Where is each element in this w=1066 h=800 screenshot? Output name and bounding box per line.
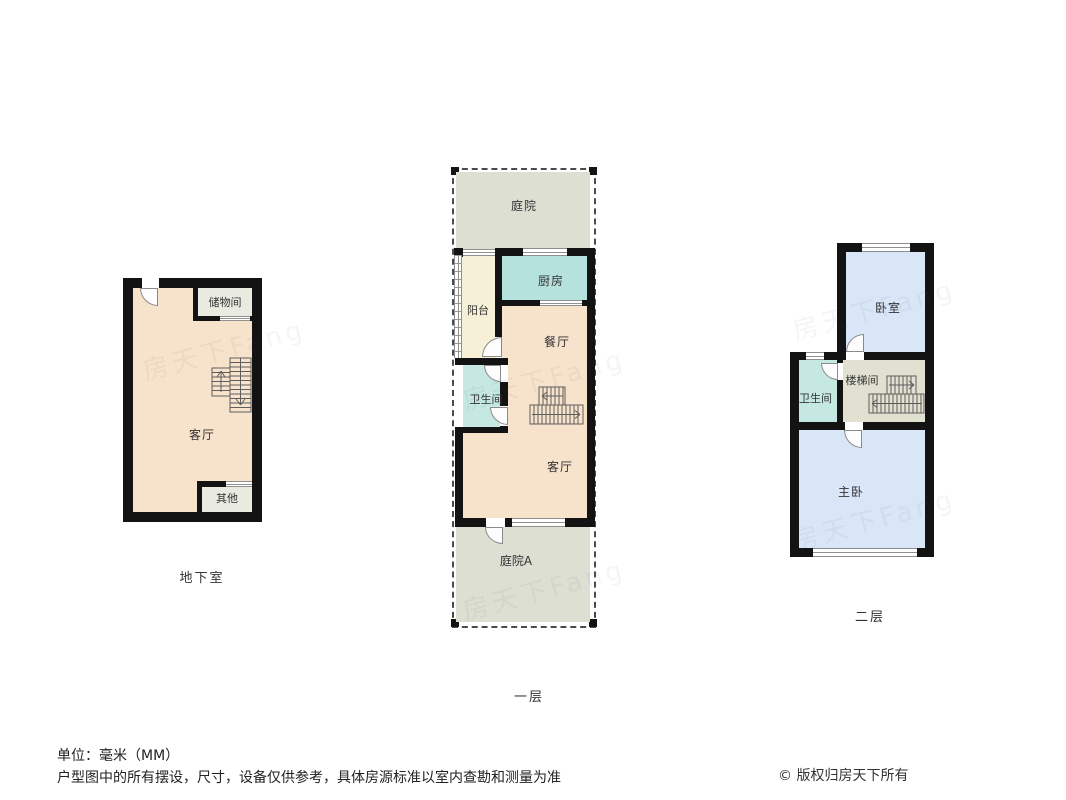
floor1-stairs	[526, 385, 587, 426]
room-label-basement-living: 客厅	[172, 428, 232, 442]
bedroom-window	[862, 243, 910, 252]
room-label-stairwell: 楼梯间	[844, 374, 880, 387]
courtyard-a-area	[456, 527, 590, 622]
room-label-courtyard: 庭院	[494, 199, 554, 213]
room-label-other: 其他	[202, 492, 252, 505]
floor1-left-wall	[455, 427, 463, 527]
room-label-floor1-living: 客厅	[530, 460, 590, 474]
room-label-floor1-bathroom: 卫生间	[464, 393, 508, 406]
stairwell-door-gap	[845, 422, 863, 430]
kitchen-bottom-window	[540, 300, 582, 306]
basement-door-gap	[142, 278, 159, 288]
copyright-note: © 版权归房天下所有	[778, 765, 908, 785]
room-label-kitchen: 厨房	[521, 274, 581, 288]
floor1-bottom-window	[512, 518, 565, 527]
floorplan-image: 客厅 储物间 其他 地下室	[0, 0, 1066, 800]
room-label-dining: 餐厅	[527, 335, 587, 349]
floor2-bathroom-window	[806, 352, 824, 360]
unit-note: 单位：毫米（MM）	[57, 745, 179, 765]
basement-stairs	[209, 356, 255, 418]
room-label-storage: 储物间	[198, 296, 252, 309]
boundary-corner	[589, 619, 597, 627]
bedroom-door-gap	[846, 352, 864, 360]
master-bedroom-window	[813, 548, 917, 557]
room-label-courtyard-a: 庭院A	[486, 554, 546, 568]
room-label-master-bedroom: 主卧	[826, 485, 876, 499]
storage-window	[220, 316, 250, 321]
room-label-balcony: 阳台	[461, 304, 495, 317]
floor-label-floor2: 二层	[840, 606, 900, 625]
floor-label-floor1: 一层	[499, 686, 559, 705]
other-window	[226, 481, 252, 487]
room-label-bedroom: 卧室	[858, 301, 918, 315]
floor-label-basement: 地下室	[160, 567, 244, 586]
boundary-corner	[589, 167, 597, 175]
floor1-right-wall	[587, 248, 595, 527]
balcony-top-window	[463, 249, 495, 256]
floor1-entry-door-gap	[486, 518, 505, 527]
room-label-floor2-bathroom: 卫生间	[793, 392, 838, 405]
kitchen-top-window	[523, 248, 567, 256]
disclaimer-note: 户型图中的所有摆设，尺寸，设备仅供参考，具体房源标准以室内查勘和测量为准	[57, 767, 561, 787]
bathroom-door-gap-top	[500, 365, 508, 382]
